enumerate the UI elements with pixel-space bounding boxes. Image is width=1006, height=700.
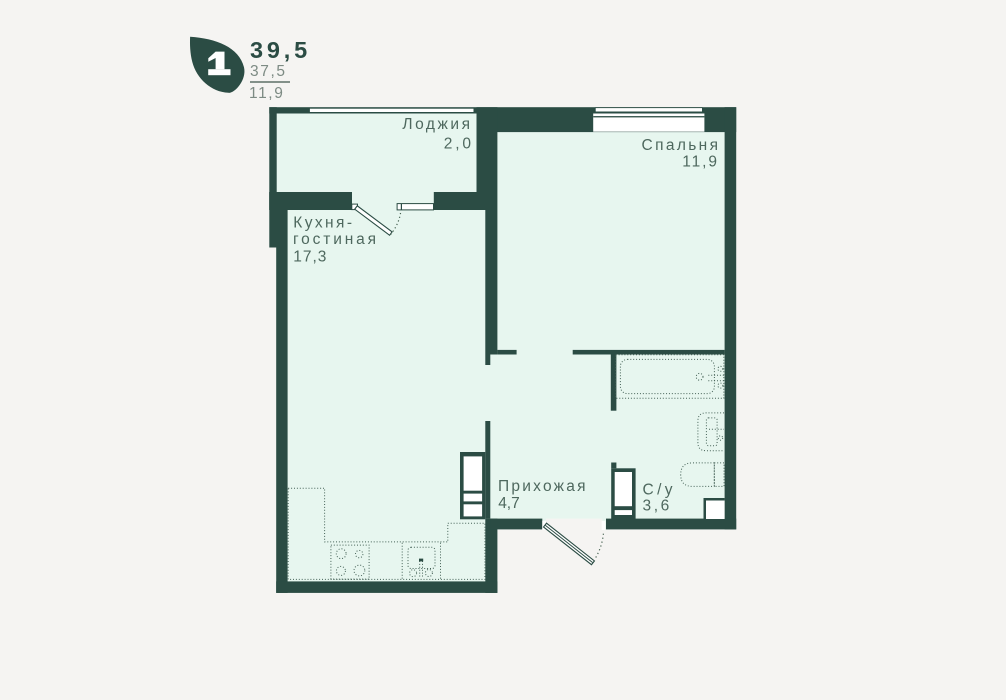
svg-text:11,9: 11,9 [682, 154, 717, 171]
svg-text:3,6: 3,6 [643, 498, 670, 515]
svg-text:4,7: 4,7 [498, 495, 520, 512]
svg-text:2,0: 2,0 [444, 136, 472, 153]
svg-text:17,3: 17,3 [293, 248, 326, 265]
svg-text:гостиная: гостиная [293, 231, 376, 248]
svg-text:С/у: С/у [643, 481, 673, 498]
svg-text:Кухня-: Кухня- [293, 214, 352, 231]
